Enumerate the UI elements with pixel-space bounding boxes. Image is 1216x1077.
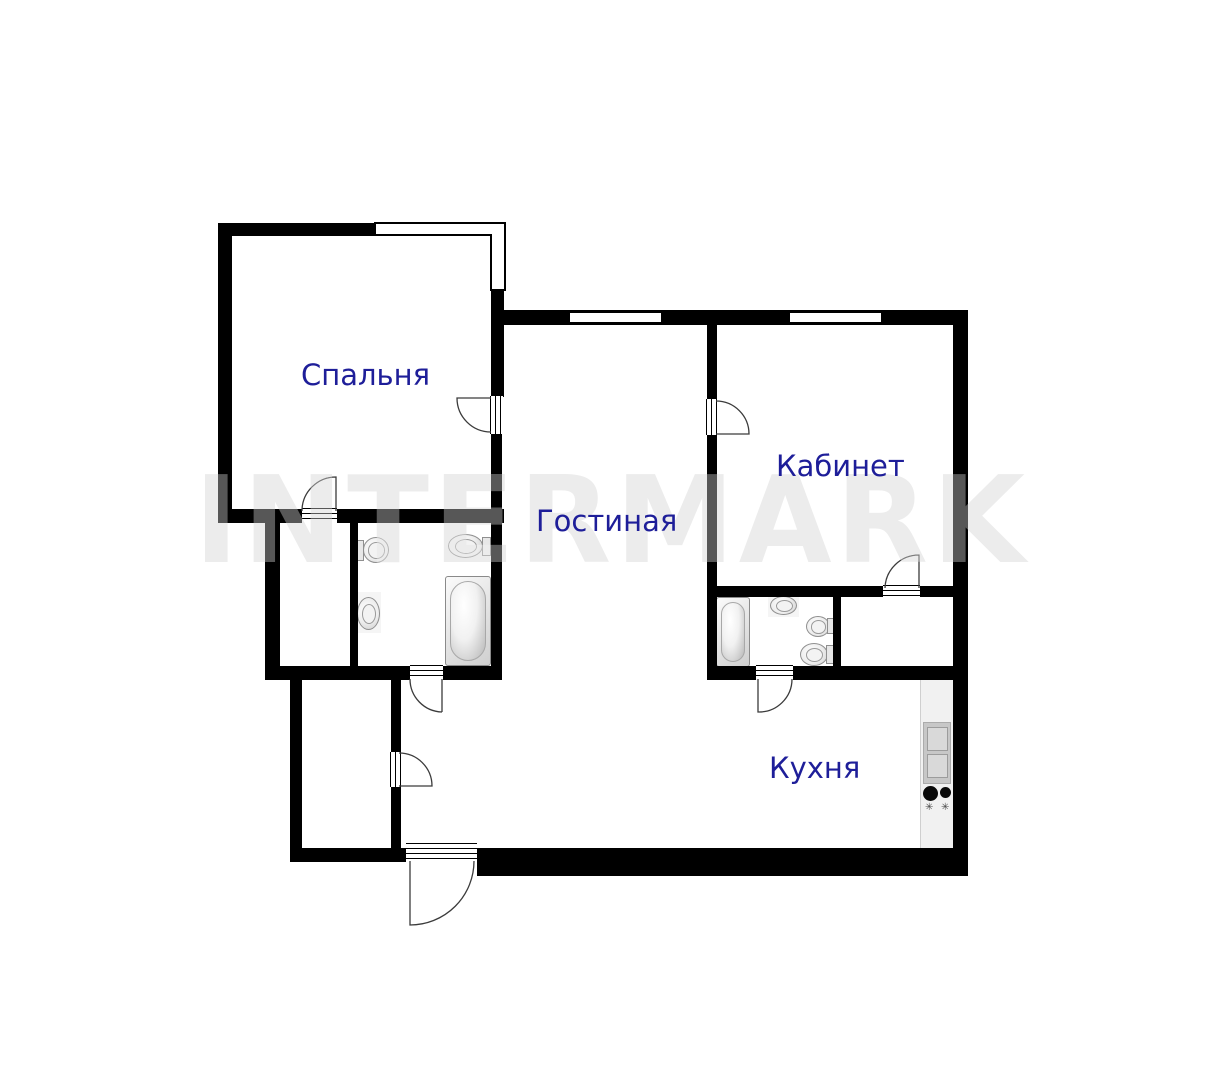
door-arc	[885, 555, 919, 588]
door-arc	[410, 679, 442, 712]
floor-plan: ✳ ✳ INTERMARK INTERMARK Спальня Гостиная…	[0, 0, 1216, 1077]
room-label-kitchen: Кухня	[769, 751, 860, 785]
door-arc	[410, 861, 474, 925]
door-arc	[302, 477, 336, 511]
door-arc	[457, 398, 491, 432]
door-arc	[716, 401, 749, 434]
door-arc	[758, 679, 792, 712]
room-label-office: Кабинет	[776, 449, 905, 483]
door-swing-arcs	[0, 0, 1216, 1077]
room-label-living-room: Гостиная	[536, 504, 677, 538]
room-label-bedroom: Спальня	[301, 358, 430, 392]
door-arc	[399, 753, 432, 786]
